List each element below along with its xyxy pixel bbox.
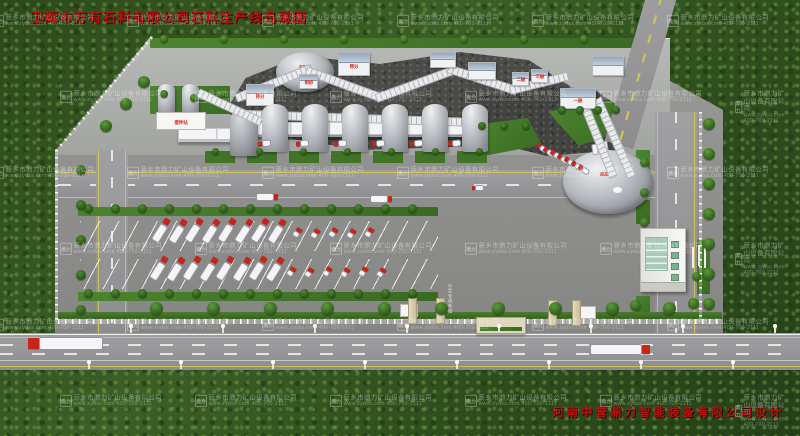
watermark-contact: www.zydss.com 400-700-2111 bbox=[411, 21, 499, 27]
parking-stalls-row1 bbox=[80, 221, 438, 251]
watermark-tile: 鼎力新乡市鼎力矿山设备有限公司www.zydss.com 400-700-211… bbox=[60, 394, 162, 407]
batching-silo-2 bbox=[182, 84, 199, 114]
canopy-shadow bbox=[252, 135, 484, 140]
watermark-logo: 鼎力 bbox=[0, 15, 4, 27]
office-base bbox=[641, 282, 685, 291]
watermark-tile: 鼎力新乡市鼎力矿山设备有限公司www.zydss.com 400-700-211… bbox=[195, 394, 297, 407]
aerial-site-rendering: 搅拌站 石料棚 成品料仓 空车专用车道 卫辉市万有石料有限公司石料生产线鸟瞰图 … bbox=[0, 0, 800, 436]
watermark-contact: www.zydss.com 400-700-2111 bbox=[209, 401, 297, 407]
watermark-contact: www.zydss.com 400-700-2111 bbox=[681, 21, 769, 27]
street-lamp-n-8 bbox=[774, 326, 776, 333]
office-windows bbox=[671, 241, 679, 281]
watermark-logo: 鼎力 bbox=[195, 395, 207, 407]
gatehouse-island bbox=[476, 317, 526, 334]
cement-silo-large bbox=[230, 110, 258, 156]
watermark-logo: 鼎力 bbox=[0, 167, 4, 179]
watermark-company: 新乡市鼎力矿山设备有限公司 bbox=[209, 394, 297, 401]
stockpile-dome-top: 石料棚 bbox=[276, 52, 334, 92]
flagpole-3 bbox=[704, 247, 706, 268]
dome-vent-dot bbox=[308, 75, 317, 81]
watermark-tile: 鼎力新乡市鼎力矿山设备有限公司www.zydss.com 400-700-211… bbox=[397, 14, 499, 27]
parking-tree-strip2 bbox=[78, 292, 438, 301]
internal-road-right bbox=[655, 112, 697, 334]
dome-highlight bbox=[613, 187, 622, 193]
watermark-tile: 鼎力新乡市鼎力矿山设备有限公司www.zydss.com 400-700-211… bbox=[735, 90, 790, 124]
watermark-tile: 鼎力新乡市鼎力矿山设备有限公司www.zydss.com 400-700-211… bbox=[532, 14, 634, 27]
office-curtain-wall bbox=[645, 237, 668, 271]
watermark-company: 新乡市鼎力矿山设备有限公司 bbox=[546, 14, 634, 21]
watermark-logo: 鼎力 bbox=[532, 15, 544, 27]
watermark-logo: 鼎力 bbox=[60, 91, 72, 103]
watermark-company: 新乡市鼎力矿山设备有限公司 bbox=[411, 14, 499, 21]
watermark-company: 新乡市鼎力矿山设备有限公司 bbox=[614, 394, 702, 401]
watermark-contact: www.zydss.com 400-700-2111 bbox=[546, 21, 634, 27]
watermark-logo: 鼎力 bbox=[60, 395, 72, 407]
watermark-logo: 鼎力 bbox=[735, 253, 742, 265]
parking-stalls-row2 bbox=[80, 259, 438, 289]
perimeter-fence-south bbox=[58, 319, 722, 324]
perimeter-fence-east bbox=[699, 112, 702, 322]
finished-product-dome: 成品料仓 bbox=[563, 150, 653, 214]
watermark-company: 新乡市鼎力矿山设备有限公司 bbox=[744, 90, 790, 112]
parking-tree-strip1 bbox=[78, 207, 438, 216]
watermark-company: 新乡市鼎力矿山设备有限公司 bbox=[681, 14, 769, 21]
batching-silo-1 bbox=[158, 84, 175, 114]
loading-canopy-left bbox=[178, 128, 238, 142]
batching-sign: 搅拌站 bbox=[174, 121, 187, 125]
designer-credit: 河南中誉鼎力智能装备有限公司设计 bbox=[552, 404, 784, 420]
watermark-company: 新乡市鼎力矿山设备有限公司 bbox=[344, 394, 432, 401]
watermark-tile: 鼎力新乡市鼎力矿山设备有限公司www.zydss.com 400-700-211… bbox=[667, 14, 769, 27]
perimeter-hedge bbox=[58, 312, 722, 319]
office-building bbox=[640, 228, 686, 292]
flagpole-2 bbox=[698, 245, 700, 266]
road-lane-label: 空车专用车道 bbox=[447, 284, 453, 314]
stockpile-dome-sign: 石料棚 bbox=[299, 64, 311, 70]
watermark-company: 新乡市鼎力矿山设备有限公司 bbox=[74, 394, 162, 401]
watermark-logo: 鼎力 bbox=[330, 395, 342, 407]
public-road bbox=[0, 333, 800, 370]
perimeter-fence-west bbox=[55, 150, 58, 322]
watermark-contact: www.zydss.com 400-700-2111 bbox=[744, 112, 790, 124]
watermark-company: 新乡市鼎力矿山设备有限公司 bbox=[744, 242, 790, 264]
watermark-logo: 鼎力 bbox=[397, 15, 409, 27]
watermark-logo: 鼎力 bbox=[465, 395, 477, 407]
watermark-tile: 鼎力新乡市鼎力矿山设备有限公司www.zydss.com 400-700-211… bbox=[330, 394, 432, 407]
batching-building: 搅拌站 bbox=[156, 112, 206, 130]
flagpole-1 bbox=[692, 247, 694, 268]
finished-dome-sign: 成品料仓 bbox=[600, 172, 616, 178]
watermark-logo: 鼎力 bbox=[0, 319, 4, 331]
watermark-logo: 鼎力 bbox=[735, 101, 742, 113]
watermark-contact: www.zydss.com 400-700-2111 bbox=[344, 401, 432, 407]
top-lawn-strip bbox=[150, 38, 645, 48]
watermark-tile: 鼎力新乡市鼎力矿山设备有限公司www.zydss.com 400-700-211… bbox=[735, 242, 790, 276]
watermark-contact: www.zydss.com 400-700-2111 bbox=[744, 264, 790, 276]
page-title: 卫辉市万有石料有限公司石料生产线鸟瞰图 bbox=[30, 7, 307, 26]
watermark-contact: www.zydss.com 400-700-2111 bbox=[74, 401, 162, 407]
watermark-company: 新乡市鼎力矿山设备有限公司 bbox=[479, 394, 567, 401]
